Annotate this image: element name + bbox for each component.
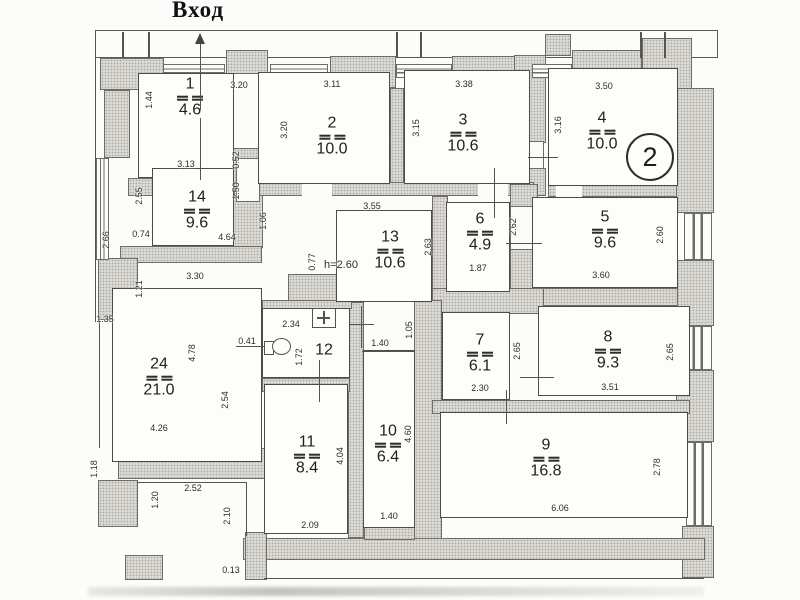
dimension-label: 2.60: [655, 226, 665, 244]
room-number: 8: [604, 330, 613, 347]
dimension-label: 3.30: [186, 271, 204, 281]
wall-line: [396, 32, 398, 58]
dimension-label: 1.18: [89, 460, 99, 478]
dimension-label: 3.60: [592, 270, 610, 280]
wall-line: [506, 243, 542, 244]
room-number: 5: [601, 210, 610, 227]
dimension-label: 0.52: [231, 151, 241, 169]
wall-segment: [545, 34, 571, 56]
wall-line: [236, 346, 264, 347]
wall-segment: [243, 538, 705, 560]
dimension-label: 1.35: [96, 314, 114, 324]
floorplan-canvas: Вход 14.6210.0310.6410.0149.61310.664.95…: [0, 0, 800, 600]
room-area: 21.0: [143, 383, 174, 400]
room-label-r12: 12: [315, 343, 333, 360]
dimension-label: 1.50: [231, 182, 241, 200]
dimension-label: 1.06: [258, 212, 268, 230]
wall-segment: [226, 50, 268, 74]
dimension-label: 3.20: [230, 80, 248, 90]
wall-segment: [532, 288, 678, 306]
room-area: 10.6: [374, 256, 405, 273]
dimension-label: 2.65: [665, 343, 675, 361]
entrance-label: Вход: [172, 0, 224, 23]
room-r24: [112, 288, 262, 462]
window: [686, 442, 712, 526]
room-number: 24: [150, 357, 168, 374]
room-label-r13: 1310.6: [374, 230, 405, 273]
wall-segment: [245, 532, 267, 580]
dimension-label: 2.78: [652, 458, 662, 476]
toilet-icon: [264, 336, 294, 358]
room-label-r9: 916.8: [530, 438, 561, 481]
dimension-label: 0.13: [222, 565, 240, 575]
room-number: 9: [542, 438, 551, 455]
dimension-label: h=2.60: [324, 259, 358, 271]
wall-line: [246, 482, 247, 536]
room-area: 10.0: [316, 142, 347, 159]
wall-line: [350, 324, 374, 325]
dimension-label: 1.20: [150, 491, 160, 509]
dimension-label: 3.38: [455, 79, 473, 89]
dimension-label: 1.87: [469, 263, 487, 273]
wall-line: [148, 32, 150, 58]
dimension-label: 6.06: [551, 503, 569, 513]
room-label-r5: 59.6: [592, 210, 618, 253]
room-area: 6.1: [469, 359, 491, 376]
wall-line: [362, 351, 414, 352]
dimension-label: 3.15: [411, 119, 421, 137]
room-label-r24: 2421.0: [143, 357, 174, 400]
room-number: 10: [379, 424, 397, 441]
room-area: 4.9: [469, 238, 491, 255]
room-number-divider: [375, 443, 401, 448]
wall-line: [200, 44, 201, 110]
floor-badge: 2: [626, 133, 674, 181]
dimension-label: 2.54: [220, 391, 230, 409]
wall-line: [528, 157, 558, 158]
room-number-divider: [184, 209, 210, 214]
dimension-label: 3.13: [177, 159, 195, 169]
wall-segment: [676, 88, 714, 213]
dimension-label: 4.64: [218, 232, 236, 242]
room-number-divider: [467, 231, 493, 236]
wall-segment: [104, 90, 130, 158]
room-area: 16.8: [530, 464, 561, 481]
entrance-arrow-icon: [195, 33, 205, 44]
wall-segment: [390, 88, 404, 186]
room-number-divider: [450, 132, 476, 137]
dimension-label: 3.51: [601, 382, 619, 392]
room-label-r4: 410.0: [586, 111, 617, 154]
wall-line: [319, 360, 320, 402]
dimension-label: 1.21: [134, 280, 144, 298]
room-area: 10.0: [586, 137, 617, 154]
dimension-label: 4.78: [187, 344, 197, 362]
scan-smear: [88, 587, 704, 596]
dimension-label: 1.40: [380, 511, 398, 521]
wall-line: [200, 118, 201, 180]
room-label-r2: 210.0: [316, 116, 347, 159]
dimension-label: 0.41: [238, 336, 256, 346]
wall-segment: [125, 555, 163, 580]
room-area: 9.6: [594, 236, 616, 253]
dimension-label: 2.63: [423, 238, 433, 256]
dimension-label: 2.09: [301, 520, 319, 530]
room-area: 10.6: [447, 139, 478, 156]
room-label-r8: 89.3: [595, 330, 621, 373]
dimension-label: 0.74: [132, 229, 150, 239]
room-number: 12: [315, 343, 333, 360]
room-label-r3: 310.6: [447, 113, 478, 156]
door-gap: [302, 182, 332, 196]
wall-segment: [414, 300, 442, 542]
room-number: 11: [299, 435, 316, 452]
dimension-label: 2.34: [282, 319, 300, 329]
room-number: 7: [476, 333, 485, 350]
sink-icon: [312, 308, 336, 328]
room-number-divider: [319, 135, 345, 140]
dimension-label: 3.11: [324, 79, 341, 89]
dimension-label: 4.04: [335, 447, 345, 465]
room-number: 14: [188, 190, 206, 207]
wall-line: [122, 32, 124, 58]
room-label-r6: 64.9: [467, 212, 493, 255]
wall-line: [95, 30, 96, 322]
wall-line: [361, 306, 362, 348]
room-label-r10: 106.4: [375, 424, 401, 467]
room-number: 6: [476, 212, 485, 229]
wall-line: [420, 32, 422, 58]
room-area: 6.4: [377, 450, 399, 467]
room-number: 3: [459, 113, 468, 130]
window: [684, 213, 712, 260]
room-label-r7: 76.1: [467, 333, 493, 376]
dimension-label: 2.55: [134, 187, 144, 205]
room-number-divider: [533, 457, 559, 462]
wall-line: [664, 32, 666, 58]
wall-line: [99, 322, 100, 448]
dimension-label: 1.05: [404, 321, 414, 339]
wall-line: [494, 168, 495, 218]
room-area: 9.3: [597, 356, 619, 373]
door-gap: [478, 182, 508, 196]
dimension-label: 2.30: [471, 383, 489, 393]
room-number-divider: [595, 349, 621, 354]
dimension-label: 3.20: [279, 121, 289, 139]
room-label-r14: 149.6: [184, 190, 210, 233]
room-number-divider: [294, 454, 320, 459]
room-number: 2: [328, 116, 337, 133]
dimension-label: 3.55: [363, 201, 381, 211]
room-number-divider: [146, 376, 172, 381]
dimension-label: 4.60: [403, 425, 413, 443]
room-area: 9.6: [186, 216, 208, 233]
dimension-label: 2.65: [512, 342, 522, 360]
dimension-label: 0.77: [307, 253, 317, 271]
room-number: 1: [186, 77, 195, 94]
dimension-label: 2.10: [222, 507, 232, 525]
dimension-label: 2.62: [508, 218, 518, 236]
dimension-label: 1.72: [294, 348, 304, 366]
room-number-divider: [377, 249, 403, 254]
room-number: 4: [598, 111, 607, 128]
wall-line: [506, 390, 507, 424]
room-label-r11: 118.4: [294, 435, 320, 478]
dimension-label: 3.16: [553, 116, 563, 134]
dimension-label: 2.52: [184, 483, 202, 493]
dimension-label: 1.44: [144, 91, 154, 109]
wall-line: [264, 578, 704, 579]
wall-line: [520, 377, 554, 378]
room-number-divider: [467, 352, 493, 357]
wall-line: [640, 32, 642, 58]
room-area: 8.4: [296, 461, 318, 478]
room-number-divider: [589, 130, 615, 135]
wall-segment: [120, 246, 262, 263]
dimension-label: 1.40: [371, 338, 389, 348]
wall-segment: [98, 480, 138, 527]
dimension-label: 4.26: [150, 423, 168, 433]
dimension-label: 2.66: [101, 231, 111, 249]
room-number-divider: [592, 229, 618, 234]
dimension-label: 3.50: [595, 81, 613, 91]
room-area: 4.6: [179, 103, 201, 120]
room-number: 13: [381, 230, 399, 247]
